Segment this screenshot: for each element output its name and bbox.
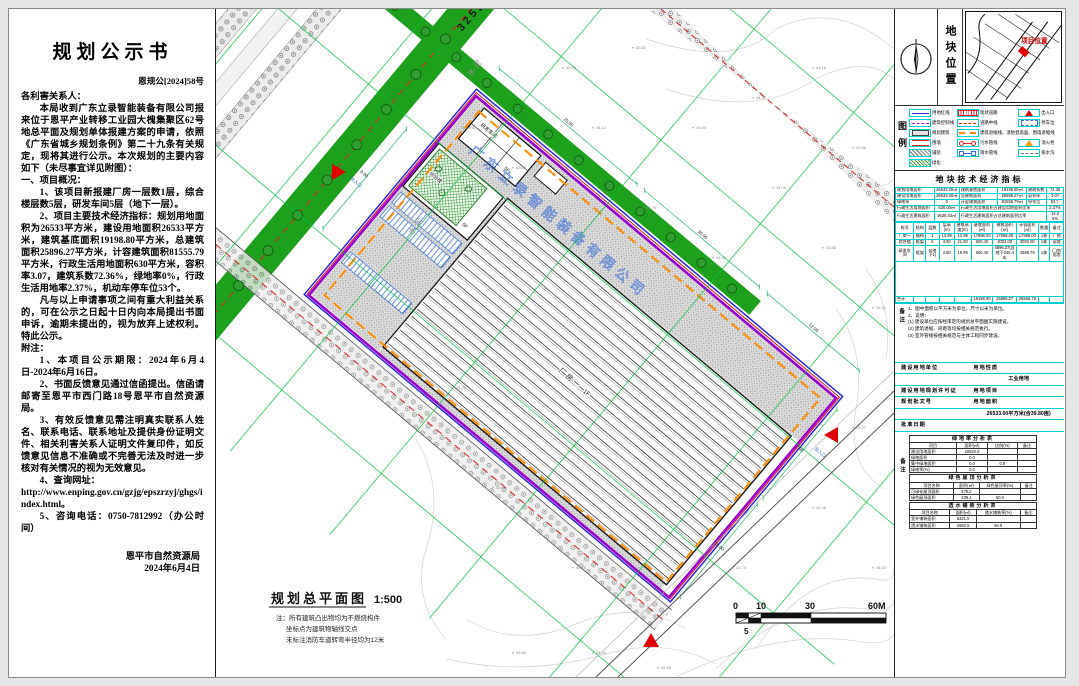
line-orange-dash-legend-icon [957,129,979,137]
spot-elevation-label: 43.96 [856,145,867,150]
table-cell [1050,296,1064,302]
line-gray-dash-legend-icon [1018,149,1040,157]
tech-note-line: 1、图中面积以平方米为单位，尺寸以米为单位。 [908,306,1061,313]
scale-tick-label: 30 [805,601,815,611]
legend-item: 建筑控制线 [909,119,956,127]
site-plan-area: 325国道 厂房一 1F 研发车间 5F [216,9,894,677]
info-row: 规划批文号用地面积 [895,397,1064,409]
table-cell [1017,467,1036,473]
table-cell: 25555.79 [1016,296,1038,302]
table-header-cell: 层数 [926,223,939,234]
legend-item-label: 雨水管线 [980,151,998,156]
table-cell: 行政生活建筑面积 [896,211,935,222]
analysis-table: 绿地率分析表项目面积(㎡)比例(%)备注建设用地面积26533.0绿地面积0.0… [909,435,1037,474]
table-header-cell: 层高(m) [939,223,954,234]
table-header-cell: 建筑面积(㎡) [993,223,1017,234]
location-box: 地块位置 项目位置 [895,9,1064,106]
table-cell: 50.0 [976,522,1020,528]
table-row: 绿地率分析表 [910,435,1037,442]
location-title: 地块位置 [938,9,963,105]
table-cell: 行政生活用地面积 [896,205,935,211]
notice-url: http://www.enping.gov.cn/gzjg/epszrzyj/g… [21,487,204,511]
line-red-double-legend-icon [909,139,931,147]
legend-item-label: 污水管线 [980,141,998,146]
legend-item-label: 出入口 [1041,111,1054,116]
notice-panel: 规划公示书 恩规公[2024]58号 各利害关系人： 本局收到广东立录智能装备有… [9,9,216,677]
line-circ-blue-legend-icon [957,149,979,157]
info-label: 用地项目 [969,386,1064,397]
table-cell: 17998.00 [1016,234,1038,240]
side-note-label: 备注 [897,308,905,325]
side-note-label: 备注 [898,458,906,475]
table-cell: 厂房/宿舍 [1050,246,1064,262]
spot-elevation-label: 44.12 [596,125,607,130]
tech-note-line: (3) 室外管线按相关规范与主体工程同步建设。 [908,333,1061,340]
analysis-table: 透水铺装分析表项目名称面积(㎡)透水铺装率(%)备注室外铺装面积5321.0透水… [909,502,1037,529]
table-cell: 19.99 [954,246,971,262]
table-cell: 81555.79㎡ [998,199,1027,205]
scale-tick-label: 60M [868,601,886,611]
plan-note: 坐标点为建筑物轴线交点 [286,624,358,633]
spot-elevation-label: 44.24 [596,650,607,655]
hatch-green-legend-icon [909,159,931,167]
legend-item-label: 围墙 [932,141,941,146]
analysis-table: 绿色屋顶分析表项目名称面积(㎡)绿色屋顶率(%)备注可绿化屋顶面积478.2绿色… [909,474,1037,501]
section-heading: 一、项目概况： [21,175,204,187]
info-row: 工业用地 [895,374,1064,386]
plan-note: 注：所有建筑凸出物均为不燃烧构件 [276,613,381,622]
info-row: 建设用地单位用地性质 [895,363,1064,375]
spot-elevation-label: 43.90 [516,165,527,170]
legend-item: 铺装 [909,149,956,157]
info-label: 建设用地单位 [895,363,969,374]
legend-item: 消火栓 [1018,139,1063,147]
land-info-rows: 建设用地单位用地性质工业用地建设用地规划许可证用地项目规划批文号用地面积2653… [895,362,1064,432]
legend-title: 图例 [896,109,909,167]
table-cell: 1栋 [1038,246,1050,262]
table-cell [954,296,971,302]
info-row: 批准日期 [895,420,1064,432]
table-cell: 19198.80㎡ [998,188,1027,194]
paragraph: 3、有效反馈意见需注明真实联系人姓名、联系电话、联系地址及提供身份证明文件、相关… [21,415,204,475]
tech-summary-table: 规划用地面积26533.00㎡建筑基底面积19198.80㎡建筑系数72.36建… [895,187,1064,222]
table-cell: 4.50 [939,246,954,262]
table-cell [939,296,954,302]
plan-scale: 1:500 [374,594,402,606]
rect-blue-dash-legend-icon [1018,119,1040,127]
table-cell: 26533.00㎡ [934,193,959,199]
spot-elevation-label: 44.55 [661,665,672,670]
spot-elevation-label: 44.08 [566,65,577,70]
table-cell: 框架 [914,246,926,262]
spot-elevation-label: 44.21 [876,305,887,310]
legend-item: 建筑退缩线、消防登高面、围墙退缩线 [957,129,1063,137]
spot-elevation-label: 44.15 [576,565,587,570]
table-cell: 25896.27㎡ [998,193,1027,199]
table-cell: 合计 [896,296,914,302]
salutation: 各利害关系人： [21,91,204,103]
table-cell: 4555.79 [1016,246,1038,262]
legend-item: 现状道路 [957,109,1017,117]
table-cell: 5(地下1) [926,246,939,262]
scale-tick-label: 0 [733,601,738,611]
spot-elevation-label: 44.45 [816,505,827,510]
legend-item-label: 排水沟 [1041,151,1054,156]
info-label: 用地性质 [969,363,1064,374]
legend-item: 排水沟 [1018,149,1063,157]
table-row: 行政生活建筑面积3638.43㎡行政生活建筑面积占总建筑面积比率14.05% [896,211,1064,222]
tri-orange-legend-icon [1018,139,1040,147]
legend-box: 图例 用地红线现状道路出入口建筑控制线道路中线停车位规划建筑建筑退缩线、消防登高… [895,106,1064,171]
site-marker-label: 项目位置 [1021,36,1048,45]
table-header-row: 栋号结构层数层高(m)建筑高度(m)基底面积(㎡)建筑面积(㎡)计容面积(㎡)数… [896,223,1064,234]
legend-item-label: 停车位 [1041,121,1054,126]
table-row: 透水铺装面积2660.550.0 [910,522,1037,528]
table-cell: 研发车间 [896,246,914,262]
table-cell: 4896.27(含地下340.48) [993,246,1017,262]
spot-elevation-label: 44.27 [856,425,867,430]
table-cell: 19198.80 [971,296,993,302]
table-cell: 绿地率(%) [910,467,957,473]
spot-elevation-label: 44.50 [696,125,707,130]
table-row: 建设用地面积26533.00㎡总建筑面积25896.27㎡容积率3.07 [896,193,1064,199]
legend-item-label: 道路中线 [980,121,998,126]
info-row: 建设用地规划许可证用地项目 [895,386,1064,398]
line-purple-dash-legend-icon [909,119,931,127]
document-sheet: 规划公示书 恩规公[2024]58号 各利害关系人： 本局收到广东立录智能装备有… [8,8,1066,678]
tech-table-title: 地块技术经济指标 [895,171,1064,187]
spot-elevation-label: 44.32 [756,95,767,100]
tri-red-legend-icon [1018,109,1040,117]
signature-date: 2024年6月4日 [21,563,200,575]
legend-item: 雨水管线 [957,149,1017,157]
legend-item-label: 铺装 [932,151,941,156]
legend-item: 停车位 [1018,119,1063,127]
spot-elevation-label: 43.75 [646,205,657,210]
legend-item: 用地红线 [909,109,956,117]
table-cell: 绿色屋顶面积 [910,494,954,500]
table-header-cell: 计容面积(㎡) [1016,223,1038,234]
legend-item: 绿化 [909,159,956,167]
table-row: 研发车间框架5(地下1)4.5019.99600.404896.27(含地下34… [896,246,1064,262]
info-label [895,374,969,385]
spot-elevation-label: 43.70 [736,565,747,570]
paragraph: 凡与以上申请事项之间有重大利益关系的，可在公示之日起十日内向本局提出书面申诉，逾… [21,295,204,343]
plan-note: 未标注消防车道转弯半径均为12米 [286,635,385,644]
table-cell [1020,522,1036,528]
spot-elevation-label: 44.05 [776,185,787,190]
spot-elevation-label: 44.02 [876,565,887,570]
table-cell: 17998.00 [993,234,1017,240]
legend-item: 规划建筑 [909,129,956,137]
table-row: 绿色屋顶分析表 [910,475,1037,482]
table-cell: 600.40 [971,246,993,262]
spot-elevation-label: 43.88 [826,245,837,250]
signature-org: 恩平市自然资源局 [21,551,200,563]
location-minimap: 项目位置 [965,11,1062,103]
line-circ-red-legend-icon [957,139,979,147]
analysis-table-title: 透水铺装分析表 [910,503,1037,510]
table-cell: 50.0 [979,494,1021,500]
table-cell: 26533.00㎡ [934,188,959,194]
analysis-table-title: 绿色屋顶分析表 [910,475,1037,482]
north-arrow-cell [895,9,938,105]
paragraph: 2、项目主要技术经济指标：规划用地面积为26533平方米，建设用地面积26533… [21,211,204,295]
spacer-row [896,261,1064,296]
info-sidebar: 地块位置 项目位置 图例 用地红线 [894,9,1064,677]
paragraph: 本局收到广东立录智能装备有限公司报来位于恩平产业转移工业园大槐集聚区62号地总平… [21,103,204,175]
info-value: 工业用地 [969,374,1064,385]
legend-item-label: 规划建筑 [932,131,950,136]
info-label: 用地面积 [969,397,1064,408]
spot-elevation-label: 44.18 [816,65,827,70]
info-label [969,420,1064,431]
line-red-dash-legend-icon [957,119,979,127]
info-label: 批准日期 [895,420,969,431]
legend-item-label: 建筑退缩线、消防登高面、围墙退缩线 [980,131,1055,136]
table-row: 规划用地面积26533.00㎡建筑基底面积19198.80㎡建筑系数72.36 [896,188,1064,194]
paragraph: 1、该项目新报建厂房一层数1层，综合楼层数5层，研发车间5层（地下一层）。 [21,187,204,211]
legend-item: 污水管线 [957,139,1017,147]
table-cell [987,467,1017,473]
table-row: 绿地率(%)0.0 [910,467,1037,473]
paragraph: 5、咨询电话：0750-7812992（办公时间） [21,511,204,535]
info-row: 26533.00平方米(合39.80亩) [895,409,1064,421]
page-title: 规划公示书 [21,47,204,59]
building-schedule-table: 栋号结构层数层高(m)建筑高度(m)基底面积(㎡)建筑面积(㎡)计容面积(㎡)数… [895,222,1064,302]
north-arrow-icon [898,37,934,77]
table-cell: 0.0 [957,467,988,473]
legend-item-label: 建筑控制线 [932,121,954,126]
spot-elevation-label: 43.98 [496,485,507,490]
analysis-tables: 备注 绿地率分析表项目面积(㎡)比例(%)备注建设用地面积26533.0绿地面积… [895,432,1064,529]
table-header-cell: 基底面积(㎡) [971,223,993,234]
plan-title: 规划总平面图 [271,591,367,606]
doc-number: 恩规公[2024]58号 [21,75,204,87]
table-header-cell: 结构 [914,223,926,234]
rect-gray-legend-icon [909,129,931,137]
hatch-gray-legend-icon [909,149,931,157]
table-cell: 建筑系数 [1026,188,1046,194]
paragraph: 4、查询网址： [21,475,204,487]
legend-item: 围墙 [909,139,956,147]
info-value: 26533.00平方米(合39.80亩) [969,409,1064,420]
table-header-cell: 建筑高度(m) [954,223,971,234]
spot-elevation-label: 44.60 [466,125,477,130]
table-row: 透水铺装分析表 [910,503,1037,510]
table-header-cell: 栋号 [896,223,914,234]
legend-item-label: 现状道路 [980,111,998,116]
scale-sub-label: 5 [744,627,749,636]
legend-item-label: 绿化 [932,161,941,166]
legend-grid: 用地红线现状道路出入口建筑控制线道路中线停车位规划建筑建筑退缩线、消防登高面、围… [909,109,1063,167]
table-cell: 239.1 [954,494,979,500]
table-header-cell: 备注 [1050,223,1064,234]
table-cell [914,296,926,302]
table-cell [1021,494,1037,500]
table-cell [1038,296,1050,302]
spot-elevation-label: 44.40 [716,255,727,260]
legend-item-label: 消火栓 [1041,141,1054,146]
table-cell: 25896.27 [993,296,1017,302]
spacer-cell [896,261,1064,296]
table-cell: 2660.5 [950,522,976,528]
info-label: 建设用地规划许可证 [895,386,969,397]
scale-tick-label: 10 [756,601,766,611]
info-label: 规划批文号 [895,397,969,408]
paragraph: 1、本项目公示期限：2024年6月4日-2024年6月16日。 [21,355,204,379]
notes-heading: 附注： [21,343,204,355]
table-cell: 3638.43㎡ [934,211,959,222]
total-row: 合计19198.8025896.2725555.79 [896,296,1064,302]
table-row: 绿色屋顶面积239.150.0 [910,494,1037,500]
table-cell: 14.05% [1047,211,1064,222]
legend-item: 道路中线 [957,119,1017,127]
table-header-cell: 数量 [1038,223,1050,234]
band-red-legend-icon [957,109,979,117]
table-cell: 透水铺装面积 [910,522,950,528]
analysis-table-title: 绿地率分析表 [910,435,1037,442]
info-label [895,409,969,420]
table-cell [926,296,939,302]
tech-notes-block: 备注 1、图中面积以平方米为单位，尺寸以米为单位。2、说明：(1) 建设单位应按… [895,303,1064,362]
legend-item-label: 用地红线 [932,111,950,116]
spot-elevation-label: 43.82 [636,45,647,50]
spot-elevation-label: 44.36 [456,385,467,390]
legend-item: 出入口 [1018,109,1063,117]
paragraph: 2、书面反馈意见通过信函提出。信函请邮寄至恩平市西门路18号恩平市自然资源局。 [21,379,204,415]
table-cell: 行政生活建筑面积占总建筑面积比率 [959,211,1046,222]
table-cell: 17998.00 [971,234,993,240]
site-plan-drawing: 325国道 厂房一 1F 研发车间 5F [216,9,894,677]
line-blue-legend-icon [909,109,931,117]
spot-elevation-label: 43.85 [516,650,527,655]
